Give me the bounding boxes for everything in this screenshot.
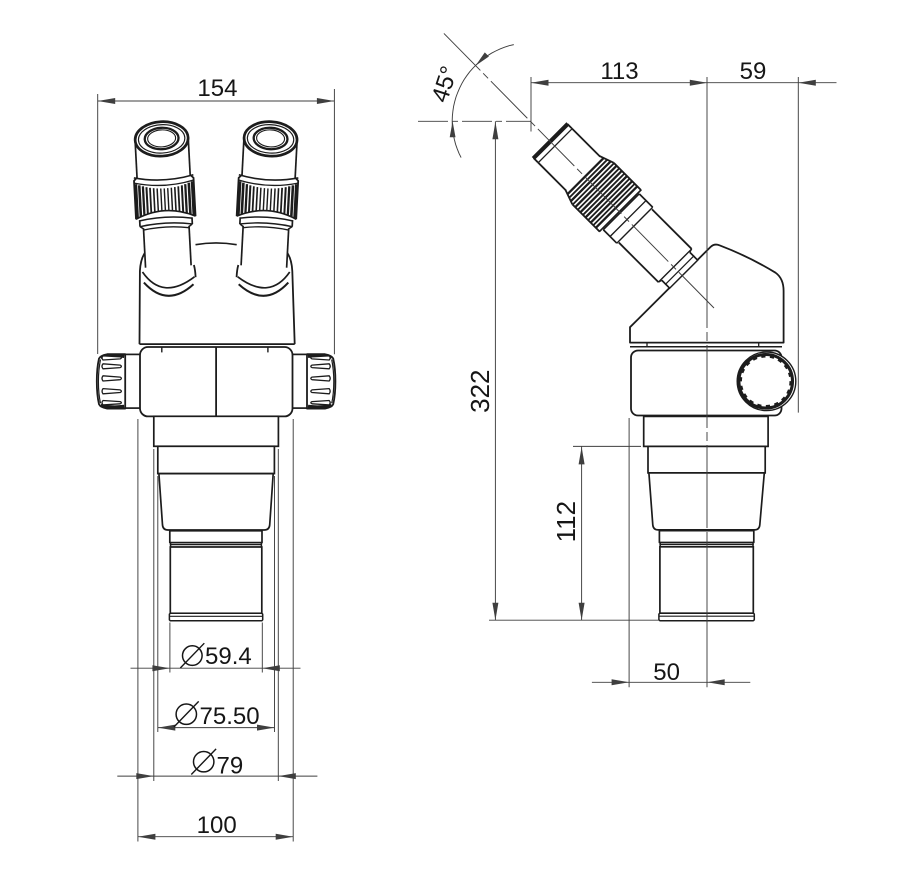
svg-text:154: 154 xyxy=(197,75,237,102)
svg-text:59.4: 59.4 xyxy=(205,643,252,670)
svg-text:113: 113 xyxy=(600,58,638,85)
svg-text:75.50: 75.50 xyxy=(200,703,260,730)
svg-text:45°: 45° xyxy=(427,63,464,106)
svg-text:79: 79 xyxy=(217,753,244,780)
svg-text:112: 112 xyxy=(551,501,581,542)
svg-text:50: 50 xyxy=(653,659,680,686)
svg-text:59: 59 xyxy=(740,58,767,85)
svg-text:100: 100 xyxy=(197,812,237,839)
svg-text:322: 322 xyxy=(465,370,495,413)
